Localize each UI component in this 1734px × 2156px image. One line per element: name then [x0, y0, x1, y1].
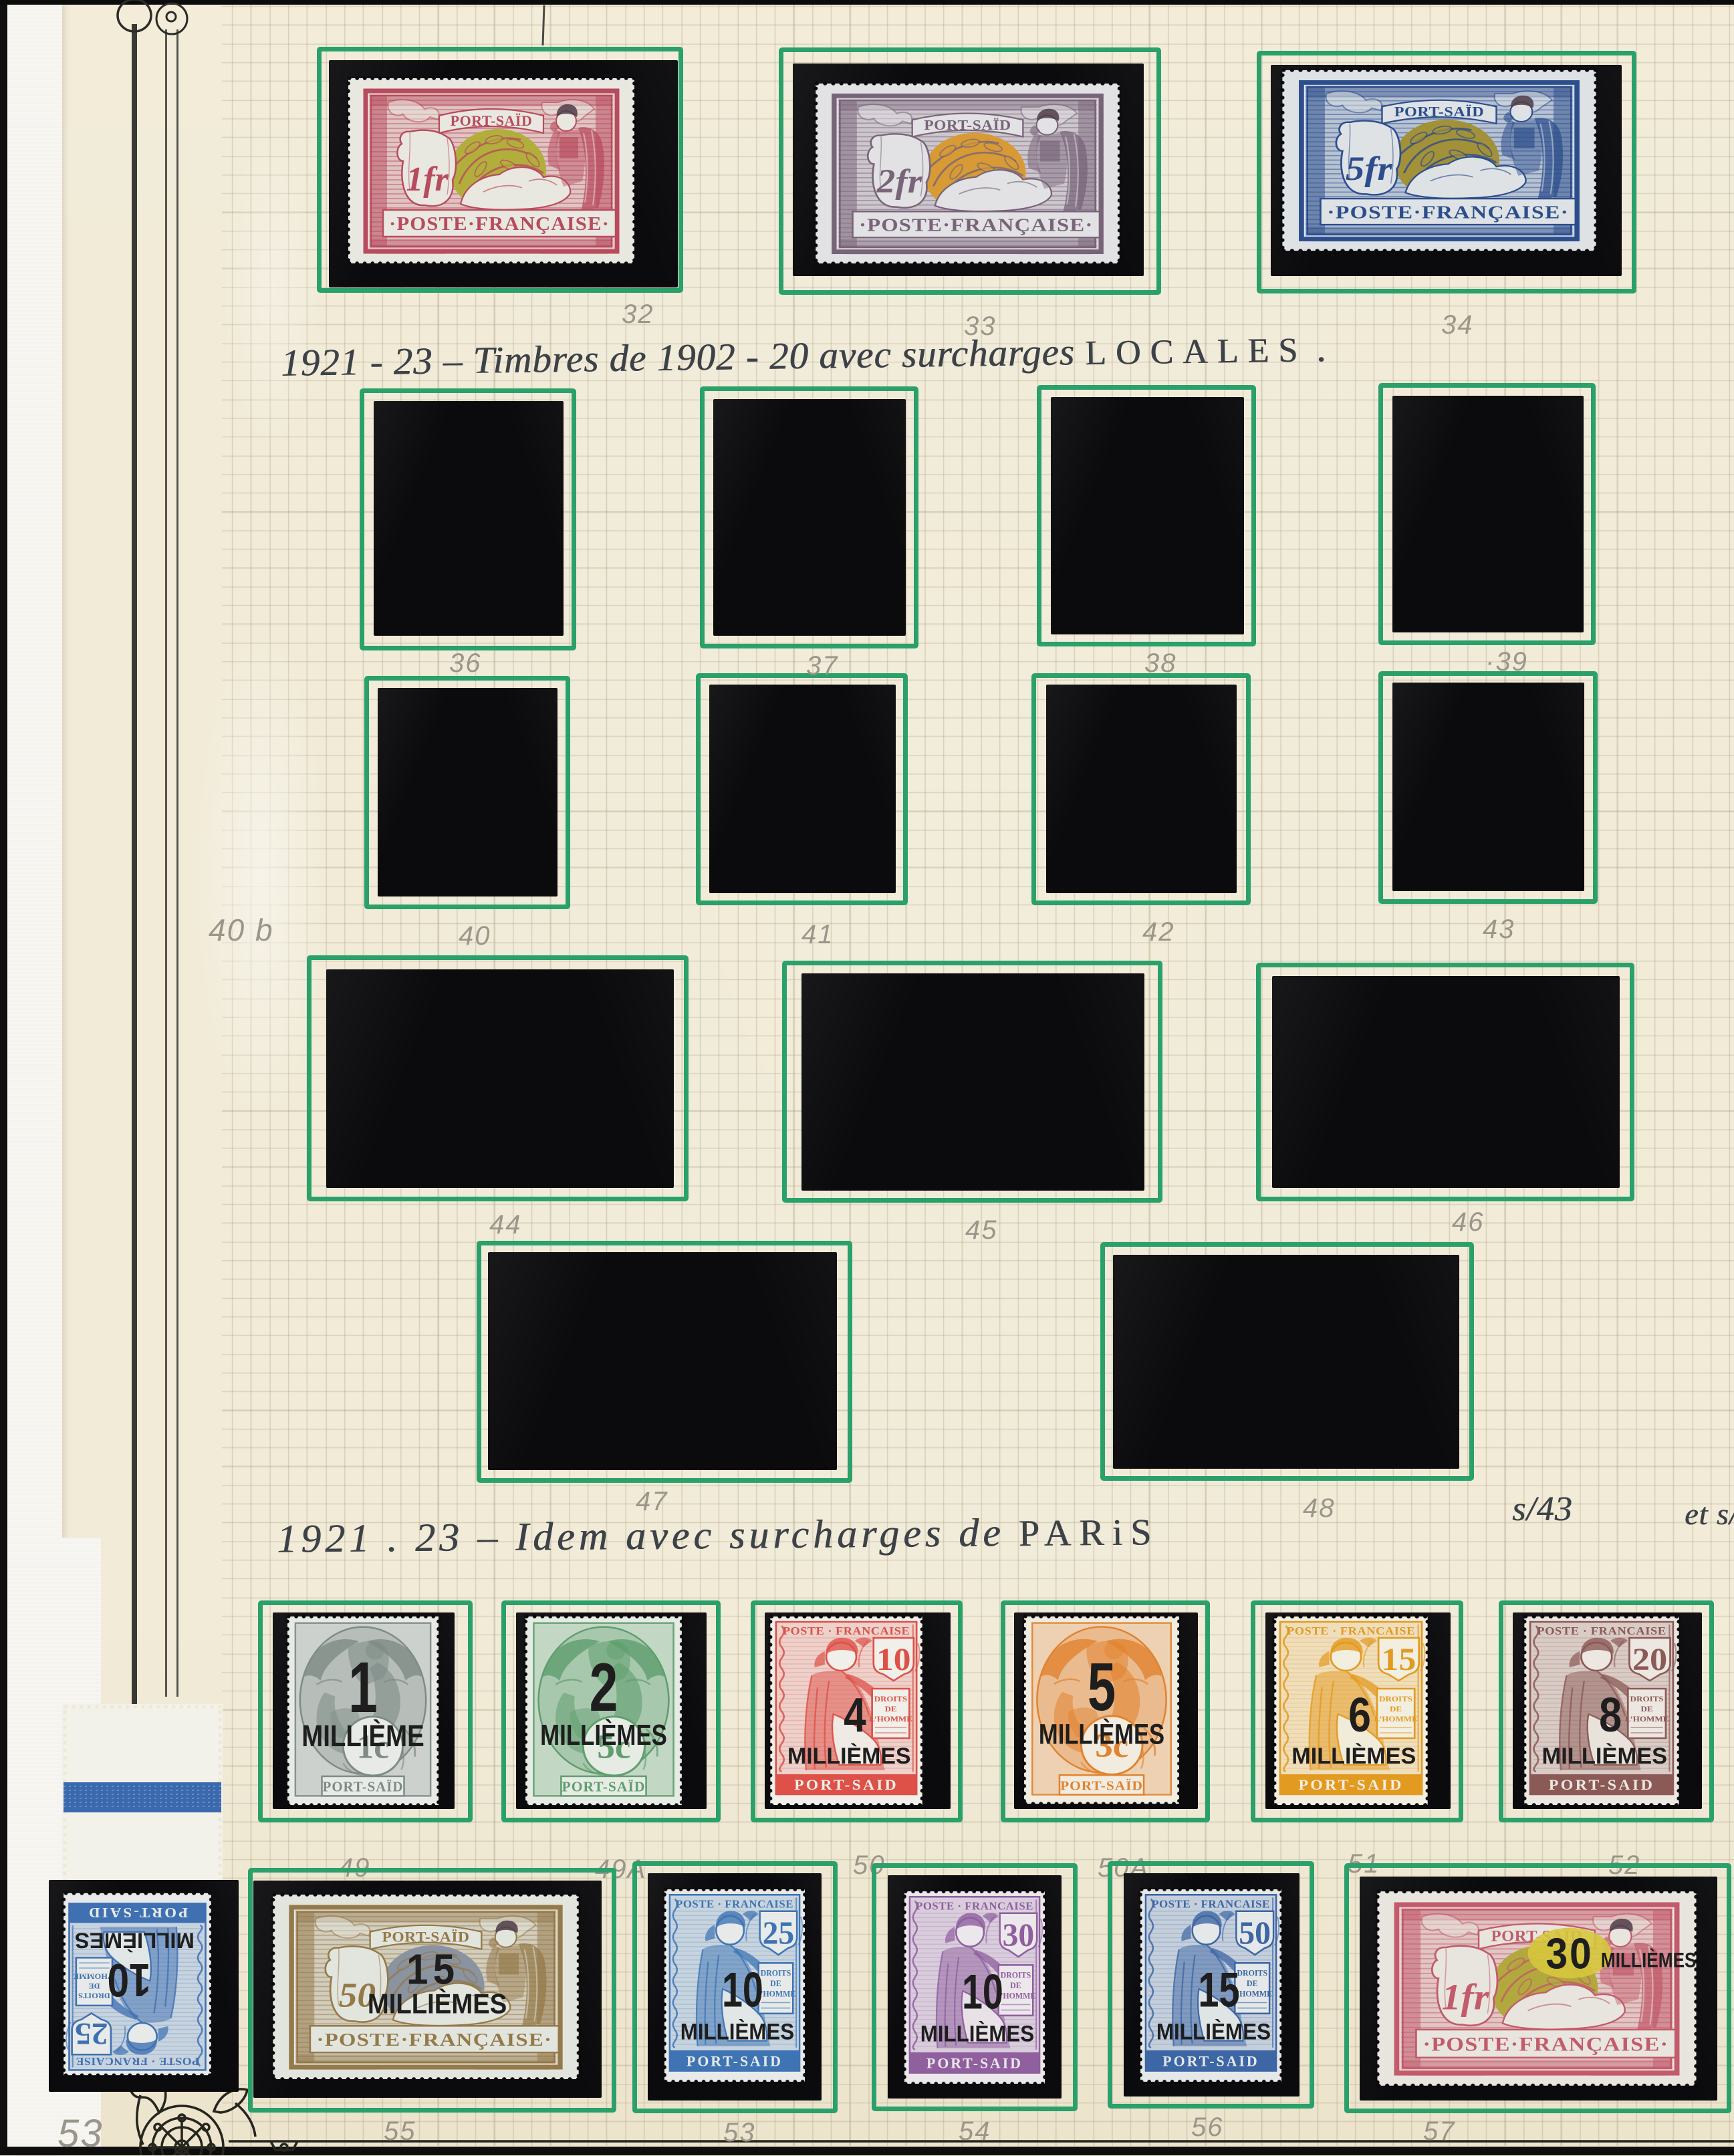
svg-text:MILLIÈMES: MILLIÈMES	[75, 1928, 195, 1953]
svg-text:15: 15	[1381, 1641, 1416, 1677]
svg-text:MILLIÈMES: MILLIÈMES	[1601, 1947, 1697, 1971]
svg-text:5fr: 5fr	[1346, 150, 1393, 187]
svg-text:4: 4	[844, 1689, 866, 1742]
svg-text:MILLIÈME: MILLIÈME	[301, 1719, 424, 1753]
svg-text:2fr: 2fr	[876, 163, 922, 200]
svg-text:MILLIÈMES: MILLIÈMES	[1156, 2018, 1271, 2044]
svg-text:MILLIÈMES: MILLIÈMES	[1291, 1743, 1416, 1768]
svg-text:8: 8	[1599, 1688, 1622, 1742]
svg-text:5: 5	[1088, 1649, 1116, 1724]
svg-text:MILLIÈMES: MILLIÈMES	[540, 1719, 667, 1752]
svg-text:MILLIÈMES: MILLIÈMES	[1039, 1717, 1164, 1750]
svg-text:MILLIÈMES: MILLIÈMES	[1542, 1743, 1668, 1768]
svg-text:30: 30	[1003, 1917, 1035, 1953]
svg-text:10: 10	[107, 1954, 150, 2006]
svg-text:MILLIÈMES: MILLIÈMES	[787, 1743, 911, 1769]
svg-text:1: 1	[348, 1647, 378, 1727]
svg-text:10: 10	[962, 1964, 1003, 2019]
svg-text:15: 15	[406, 1945, 459, 1993]
svg-text:10: 10	[722, 1962, 763, 2017]
svg-text:1fr: 1fr	[1442, 1978, 1490, 2018]
svg-text:6: 6	[1348, 1689, 1371, 1742]
svg-text:MILLIÈMES: MILLIÈMES	[680, 2018, 794, 2045]
svg-text:MILLIÈMES: MILLIÈMES	[920, 2020, 1034, 2047]
svg-text:25: 25	[75, 2016, 108, 2050]
svg-text:20: 20	[1632, 1641, 1667, 1677]
svg-text:1fr: 1fr	[406, 160, 449, 199]
svg-text:15: 15	[1198, 1962, 1239, 2017]
svg-text:30: 30	[1546, 1930, 1594, 1978]
svg-text:2: 2	[590, 1650, 618, 1726]
svg-text:MILLIÈMES: MILLIÈMES	[368, 1989, 507, 2020]
svg-text:50: 50	[1239, 1915, 1271, 1951]
svg-text:25: 25	[763, 1915, 795, 1951]
svg-text:10: 10	[876, 1642, 910, 1677]
